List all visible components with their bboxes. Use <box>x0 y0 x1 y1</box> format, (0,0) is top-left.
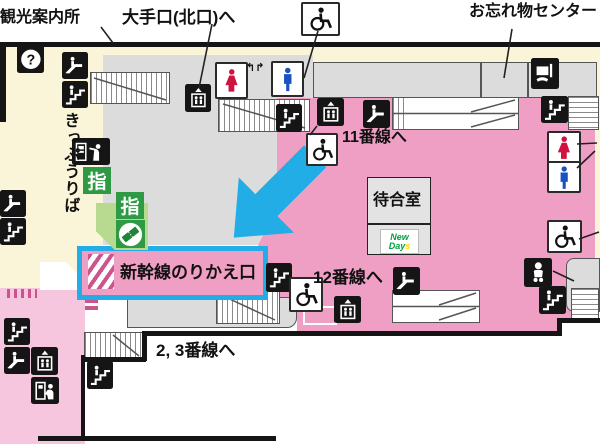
wheelchair-icon <box>547 220 582 253</box>
stairs-icon <box>276 104 302 132</box>
boundary-corridor-side <box>81 355 85 440</box>
reserved-badge-text: 指 <box>87 167 106 194</box>
boundary-top <box>0 42 600 47</box>
tourist-info-label: 観光案内所 <box>0 9 80 27</box>
track-11-label: 11番線へ <box>342 129 407 147</box>
lost-center-label: お忘れ物センター <box>469 3 597 21</box>
shinkansen-gate-highlight: 新幹線のりかえ口 <box>77 246 268 300</box>
reserved-badge-text: 指 <box>120 192 139 219</box>
escalator-icon <box>4 347 30 374</box>
wheelchair-icon <box>301 2 340 36</box>
ticket-office-label: きっぷうりば <box>60 112 78 214</box>
toilet-female-icon <box>215 62 248 99</box>
elevator-icon <box>31 347 58 375</box>
gate-stripes <box>88 254 114 289</box>
escalator-icon <box>363 100 390 128</box>
stairs-drawing <box>571 288 599 320</box>
lost-items-icon <box>531 58 559 89</box>
gate-mark <box>85 306 98 310</box>
information-icon: ? <box>17 45 44 73</box>
bar-divider <box>480 63 482 97</box>
stairs-icon <box>541 96 568 123</box>
stairs-icon <box>0 218 26 245</box>
ticket-window-icon <box>31 377 59 404</box>
wheelchair-icon <box>306 133 338 166</box>
baby-room-icon <box>524 258 552 287</box>
toilet-direction-arrows: ↰↱ <box>246 62 264 75</box>
shinkansen-gate-label: 新幹線のりかえ口 <box>120 263 256 283</box>
boundary-bottom-right <box>560 318 600 323</box>
boundary-bottom <box>143 331 562 336</box>
bar-divider <box>527 63 529 97</box>
waiting-room-box: 待合室 New Days <box>367 177 431 255</box>
svg-text:?: ? <box>26 52 35 68</box>
boundary-left-top <box>0 42 6 122</box>
toilet-male-icon <box>271 61 304 97</box>
elevator-icon <box>334 296 361 323</box>
newdays-logo: New Days <box>380 229 419 254</box>
stairs-drawing <box>84 332 144 359</box>
waiting-room-divider <box>368 223 430 225</box>
escalator-icon <box>62 52 88 79</box>
boundary-corridor-bottom <box>38 436 276 441</box>
reserved-badge: 指 <box>83 167 111 194</box>
stairs-icon <box>62 81 88 108</box>
escalator-icon <box>0 190 26 217</box>
track-2-3-label: 2, 3番線へ <box>156 341 235 361</box>
reserved-seat-ticket-icon <box>116 220 145 248</box>
toilet-female-icon <box>547 131 581 164</box>
newdays-line2: Days <box>389 242 411 251</box>
station-map: 新幹線のりかえ口 待合室 New Days 指 指 ? ↰↱ <box>0 0 600 444</box>
elevator-icon <box>317 98 344 126</box>
stairs-icon <box>539 286 566 314</box>
corridor-gate-hatch <box>7 289 37 298</box>
escalator-drawing <box>392 97 519 130</box>
escalator-icon <box>393 267 420 295</box>
waiting-room-label: 待合室 <box>373 192 421 210</box>
stairs-icon <box>4 318 30 345</box>
stairs-drawing <box>568 96 599 130</box>
track-12-label: 12番線へ <box>313 268 383 288</box>
reserved-badge: 指 <box>116 192 144 219</box>
stairs-icon <box>87 361 113 389</box>
elevator-icon <box>185 84 211 112</box>
ote-exit-label: 大手口(北口)へ <box>122 8 235 28</box>
stairs-drawing <box>90 72 170 104</box>
toilet-male-icon <box>547 161 581 193</box>
